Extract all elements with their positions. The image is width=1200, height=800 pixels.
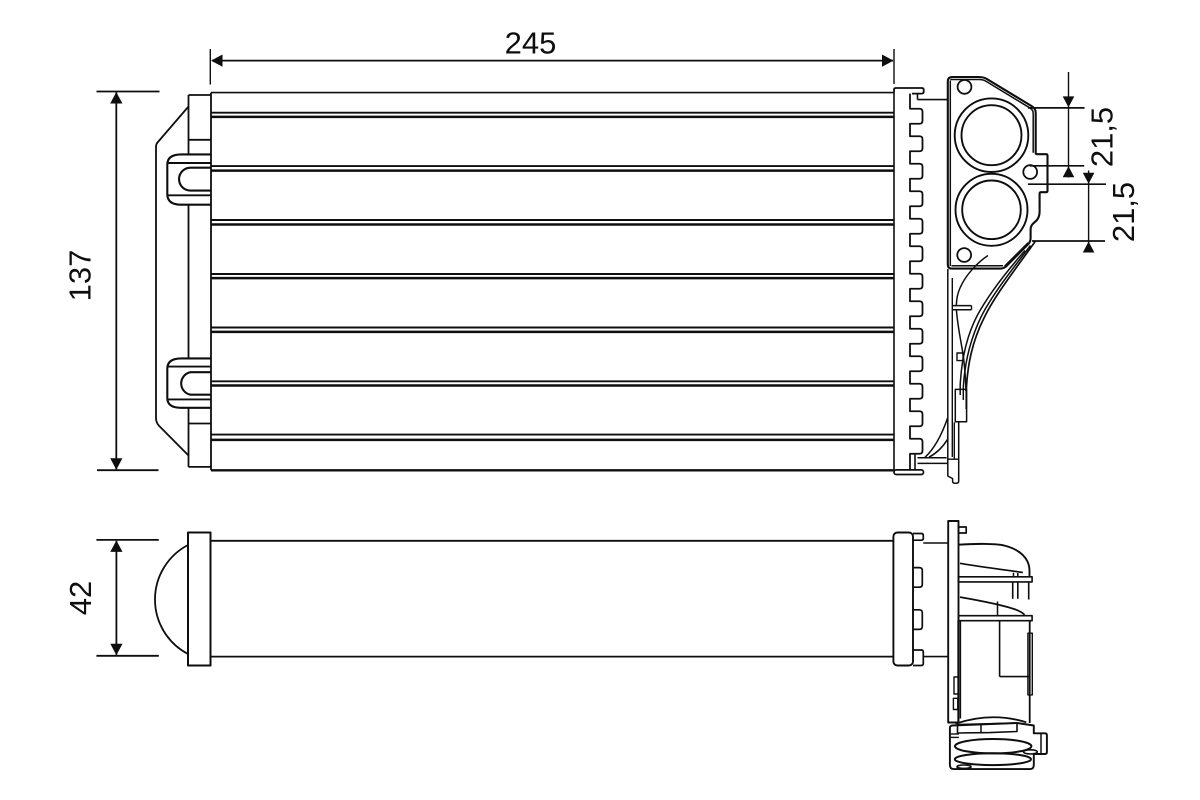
svg-text:21,5: 21,5 <box>1106 182 1141 242</box>
svg-text:137: 137 <box>63 250 98 302</box>
svg-text:21,5: 21,5 <box>1085 107 1120 167</box>
svg-text:42: 42 <box>63 581 98 615</box>
svg-text:245: 245 <box>505 26 557 61</box>
